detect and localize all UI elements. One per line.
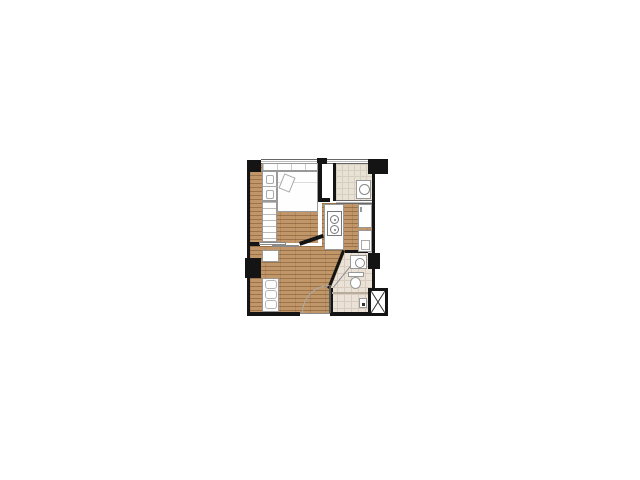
two-burner-stove bbox=[327, 211, 342, 236]
shaft-cross-icon bbox=[371, 291, 385, 313]
sofa-cushion bbox=[265, 280, 277, 289]
kitchen-step-wall bbox=[318, 198, 330, 202]
entrance-threshold bbox=[300, 313, 330, 315]
page-canvas bbox=[0, 0, 640, 480]
bottom-wall-left bbox=[247, 312, 300, 316]
shower-divider bbox=[332, 292, 371, 294]
cabinet-sink bbox=[361, 240, 370, 250]
wardrobe-hanger-icon bbox=[266, 175, 274, 184]
sofa-cushion bbox=[265, 290, 277, 299]
column-bathroom bbox=[368, 253, 380, 269]
sofa-cushion bbox=[265, 300, 277, 309]
water-heater bbox=[359, 298, 367, 308]
lower-cabinet bbox=[358, 230, 372, 252]
entrance-door-leaf bbox=[329, 285, 331, 313]
service-shaft bbox=[368, 288, 388, 316]
column-left-mid bbox=[245, 258, 261, 278]
stove-burner-icon bbox=[330, 225, 339, 234]
heater-dot bbox=[362, 303, 365, 306]
sofa bbox=[262, 278, 279, 312]
burner-dot bbox=[334, 219, 336, 221]
refrigerator-handle bbox=[360, 207, 362, 212]
bedroom-right-wall bbox=[318, 163, 322, 201]
wardrobe-lower-cell bbox=[263, 187, 278, 202]
washbasin-bowl-icon bbox=[355, 258, 365, 268]
column-top-right bbox=[368, 159, 388, 174]
toilet bbox=[348, 272, 364, 290]
wardrobe-upper-cell bbox=[263, 172, 278, 187]
toilet-bowl-icon bbox=[350, 277, 361, 289]
wardrobe-hanger-icon bbox=[266, 190, 274, 199]
stove-burner-icon bbox=[330, 215, 339, 224]
wardrobe bbox=[262, 171, 277, 201]
washing-machine-drum-icon bbox=[359, 184, 370, 195]
washing-machine bbox=[356, 180, 371, 199]
column-top-left bbox=[247, 160, 261, 172]
bedroom-sliding-door-panel-2 bbox=[272, 245, 299, 248]
dresser bbox=[262, 201, 277, 242]
headboard-shelf bbox=[262, 163, 318, 171]
washbasin-counter bbox=[350, 255, 367, 269]
floor-plan bbox=[245, 158, 391, 320]
burner-dot bbox=[334, 229, 336, 231]
balcony-left-wall bbox=[333, 163, 336, 201]
console-cabinet bbox=[262, 250, 279, 262]
refrigerator bbox=[358, 204, 372, 228]
left-wall bbox=[247, 160, 250, 316]
